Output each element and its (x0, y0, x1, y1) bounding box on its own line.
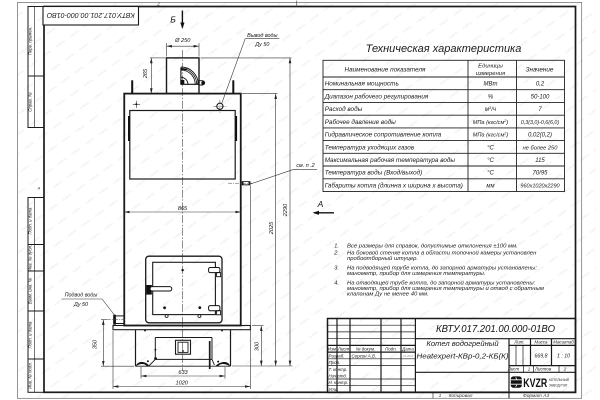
svg-text:Т. контр.: Т. контр. (329, 367, 348, 372)
svg-text:Взам. инв. №: Взам. инв. № (28, 277, 33, 304)
svg-text:Подп.: Подп. (385, 347, 397, 352)
svg-text:Максимальная рабочая температу: Максимальная рабочая температура воды (325, 156, 456, 164)
svg-text:633: 633 (178, 370, 188, 376)
svg-text:4.: 4. (334, 281, 339, 287)
svg-text:0,3(3,0)-0,6(6,0): 0,3(3,0)-0,6(6,0) (521, 120, 560, 126)
svg-text:1: 1 (439, 393, 442, 399)
svg-text:Расход воды: Расход воды (325, 105, 363, 113)
svg-text:Лит.: Лит. (513, 340, 524, 345)
svg-text:Нач.отд.: Нач.отд. (329, 374, 348, 379)
svg-text:Пров.: Пров. (329, 360, 341, 365)
svg-text:Изм: Изм (328, 347, 336, 352)
svg-text:KVZR: KVZR (523, 376, 547, 390)
svg-text:Номинальная мощность: Номинальная мощность (325, 81, 399, 88)
svg-text:МПа (кгс/см2): МПа (кгс/см2) (473, 119, 509, 126)
svg-text:Сергин А.В.: Сергин А.В. (352, 353, 377, 358)
svg-text:Н. контр.: Н. контр. (329, 380, 349, 385)
svg-text:Утв.: Утв. (329, 387, 339, 392)
svg-text:Инв. № дубл.: Инв. № дубл. (28, 245, 33, 271)
svg-text:Справ. №: Справ. № (28, 92, 33, 112)
svg-text:Рабочее давление воды: Рабочее давление воды (325, 118, 396, 126)
svg-text:265: 265 (143, 68, 149, 79)
svg-text:измерения: измерения (476, 71, 506, 77)
svg-text:манометр, прибор для измерения: манометр, прибор для измерения температу… (347, 271, 485, 277)
svg-text:10.2024: 10.2024 (403, 354, 414, 358)
svg-text:Вывод воды: Вывод воды (247, 33, 277, 39)
svg-text:Гидравлическое сопротивление к: Гидравлическое сопротивление котла (325, 131, 442, 139)
svg-text:2.: 2. (333, 250, 339, 256)
svg-text:Температура воды (Вход/выход): Температура воды (Вход/выход) (325, 169, 423, 177)
svg-text:клапанам Ду не менее 40 мм.: клапанам Ду не менее 40 мм. (347, 292, 429, 298)
svg-text:2290: 2290 (283, 203, 289, 217)
svg-text:1020: 1020 (175, 380, 188, 386)
svg-text:Значение: Значение (526, 66, 554, 73)
svg-text:Листов: Листов (534, 367, 552, 372)
svg-text:Лист: Лист (337, 347, 350, 352)
svg-text:Лист: Лист (507, 367, 520, 372)
svg-text:Масса: Масса (535, 340, 549, 345)
svg-text:пробоотборный штуцер.: пробоотборный штуцер. (347, 255, 418, 262)
svg-text:Heatexpert-КВр-0,2-КБ(К): Heatexpert-КВр-0,2-КБ(К) (417, 352, 509, 361)
svg-text:Подвод воды: Подвод воды (65, 293, 98, 299)
svg-text:Подп. и дата: Подп. и дата (28, 321, 33, 349)
svg-text:№ докум.: № докум. (356, 347, 375, 352)
svg-text:960х1020х2290: 960х1020х2290 (520, 184, 560, 190)
svg-text:Ду 50: Ду 50 (73, 302, 88, 308)
svg-text:0,02(0,2): 0,02(0,2) (528, 133, 552, 139)
svg-text:1 : 10: 1 : 10 (557, 354, 570, 360)
svg-text:Техническая характеристика: Техническая характеристика (366, 43, 522, 55)
svg-text:Габариты котла (длинна х ширин: Габариты котла (длинна х ширина х высота… (325, 182, 463, 190)
svg-text:МПа (кгс/см2): МПа (кгс/см2) (473, 132, 509, 139)
svg-text:2025: 2025 (269, 221, 275, 235)
svg-text:А: А (37, 186, 41, 191)
svg-text:Подп. и дата: Подп. и дата (28, 207, 33, 235)
svg-text:669,8: 669,8 (535, 354, 548, 360)
svg-text:КОТЕЛЬНЫЙ: КОТЕЛЬНЫЙ (549, 378, 570, 382)
svg-text:Копировал: Копировал (449, 393, 473, 399)
svg-text:50-100: 50-100 (531, 94, 550, 100)
svg-text:см. п .2: см. п .2 (296, 163, 314, 169)
svg-text:2: 2 (156, 2, 160, 7)
svg-text:Б: Б (170, 15, 176, 25)
svg-text:мм: мм (486, 184, 494, 190)
svg-text:Масштаб: Масштаб (553, 340, 574, 345)
svg-text:70/95: 70/95 (532, 171, 548, 177)
svg-text:Все размеры для справок, допус: Все размеры для справок, допустимые откл… (347, 244, 518, 250)
svg-text:Единицы: Единицы (478, 64, 503, 70)
svg-text:КВТУ.017.201.00.000-01ВО: КВТУ.017.201.00.000-01ВО (46, 11, 135, 18)
svg-text:%: % (488, 94, 494, 100)
svg-text:Наименование показателя: Наименование показателя (345, 66, 427, 73)
svg-text:Перв. примен.: Перв. примен. (28, 27, 33, 56)
svg-text:°С: °С (487, 145, 494, 151)
svg-text:°С: °С (487, 158, 494, 164)
svg-text:Диапазон рабочего регулировани: Диапазон рабочего регулирования (324, 92, 429, 100)
svg-text:КВТУ.017.201.00.000-01ВО: КВТУ.017.201.00.000-01ВО (436, 324, 555, 335)
svg-text:°С: °С (487, 171, 494, 177)
svg-text:Котел водогрейный: Котел водогрейный (426, 339, 499, 348)
svg-text:865: 865 (178, 206, 188, 212)
svg-text:115: 115 (535, 158, 545, 164)
svg-text:2: 2 (563, 367, 567, 372)
svg-text:1.: 1. (334, 244, 339, 250)
svg-text:Ду 50: Ду 50 (254, 42, 269, 48)
svg-text:0,2: 0,2 (536, 82, 545, 88)
svg-text:А: А (317, 199, 324, 209)
svg-text:Формат А3: Формат А3 (523, 393, 550, 399)
svg-text:350: 350 (92, 339, 98, 349)
svg-text:м3/ч: м3/ч (485, 105, 496, 113)
svg-text:Инв. № подл.: Инв. № подл. (28, 362, 33, 389)
svg-text:ЗАВОД РЭП: ЗАВОД РЭП (549, 384, 568, 388)
svg-text:Разраб.: Разраб. (329, 353, 345, 358)
svg-text:Дата: Дата (401, 347, 414, 352)
svg-text:3.: 3. (334, 266, 339, 272)
svg-text:Температура уходящих газов: Температура уходящих газов (325, 143, 415, 151)
svg-text:не более 250: не более 250 (523, 145, 559, 151)
svg-text:Ø 250: Ø 250 (174, 38, 191, 44)
svg-text:300: 300 (255, 341, 261, 351)
svg-text:МВт: МВт (484, 82, 498, 88)
